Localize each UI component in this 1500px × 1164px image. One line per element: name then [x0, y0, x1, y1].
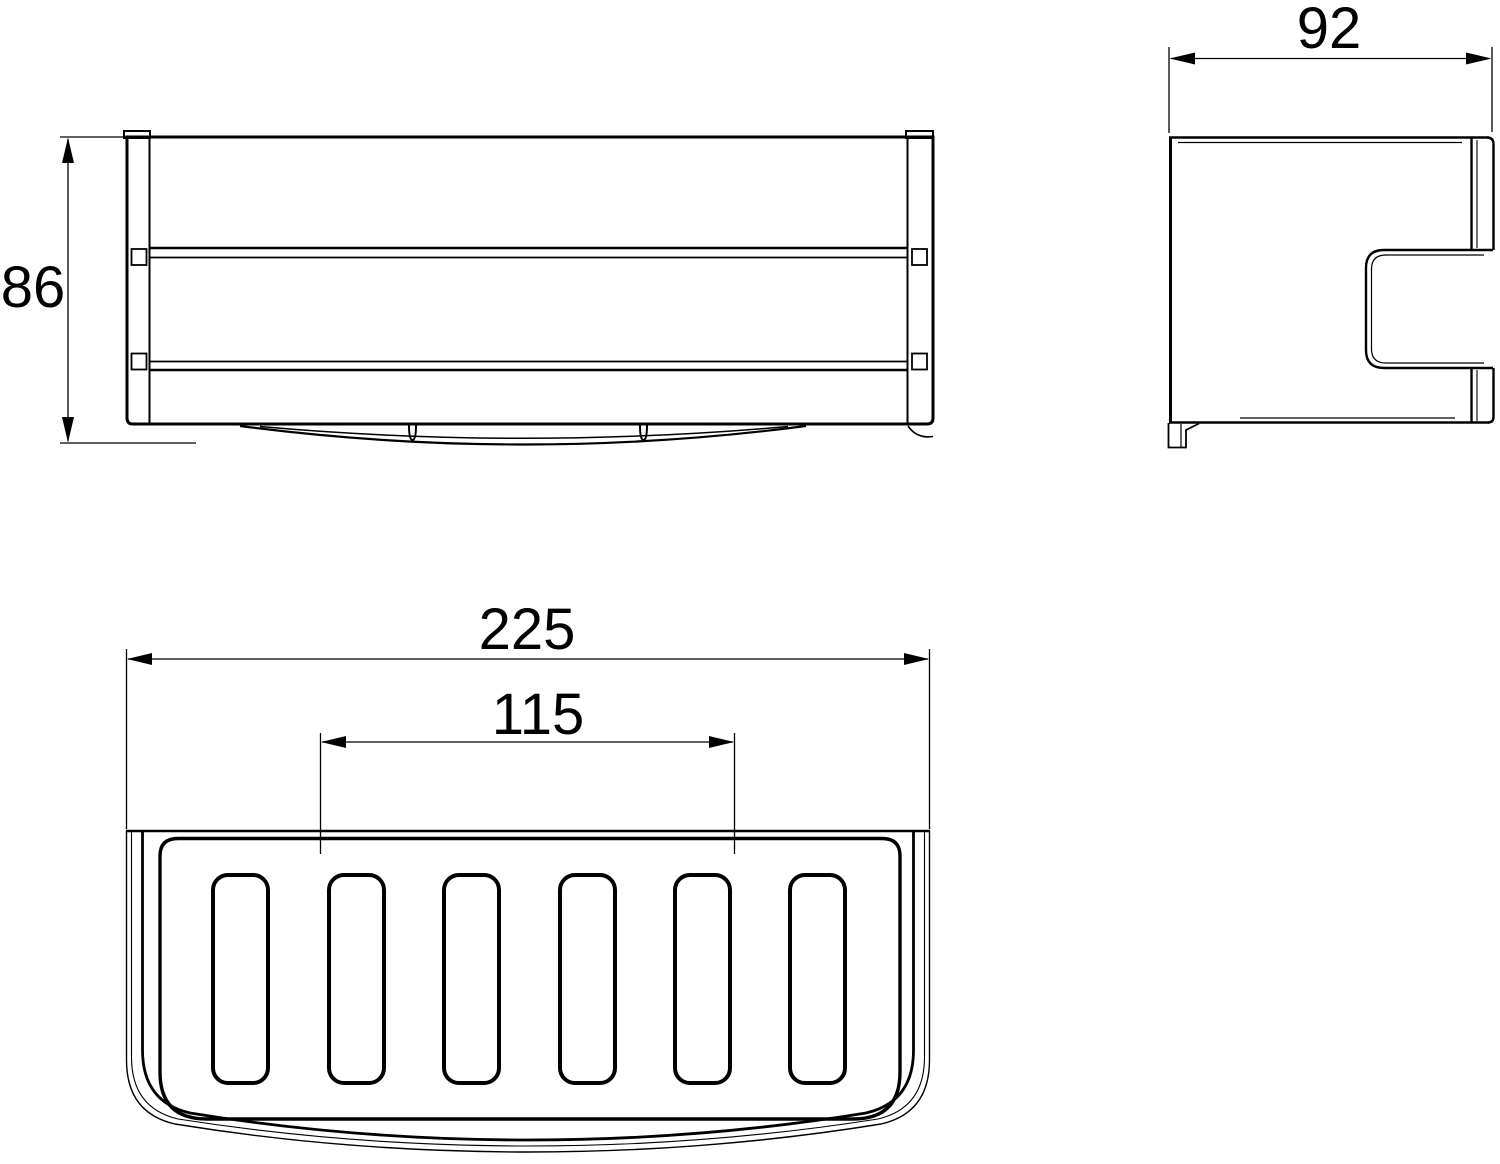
plan-slot-4 — [560, 875, 615, 1083]
side-notch-inner — [1372, 255, 1485, 363]
dimension-inner-spacing: 115 — [321, 682, 735, 854]
dim-height-label: 86 — [1, 255, 66, 320]
dim-height-arrow-down — [62, 417, 74, 443]
dim-inner-arrow-right — [709, 736, 734, 748]
plan-slot-5 — [675, 875, 730, 1083]
side-bottom-strip-outer-edge — [1488, 368, 1494, 423]
plan-slot-2 — [329, 875, 384, 1083]
plan-slot-3 — [444, 875, 499, 1083]
front-drain-pin-right — [640, 426, 647, 441]
plan-outer-rim — [127, 831, 930, 1152]
plan-slot-1 — [213, 875, 268, 1083]
front-left-post-step-upper — [132, 249, 147, 265]
plan-outer-rim-hairline — [132, 831, 925, 1146]
dim-depth-arrow-left — [1170, 53, 1196, 65]
technical-drawing-canvas: 86 92 — [0, 0, 1500, 1164]
front-view — [124, 131, 933, 445]
front-drain-pin-left — [409, 426, 416, 441]
side-mount-foot — [1169, 423, 1200, 448]
side-view — [1169, 137, 1494, 448]
front-right-post-step-upper — [912, 249, 927, 265]
dim-width-arrow-left — [127, 653, 152, 665]
dim-inner-arrow-left — [321, 736, 346, 748]
dim-depth-label: 92 — [1297, 0, 1362, 61]
dim-inner-label: 115 — [492, 682, 584, 747]
dim-width-label: 225 — [479, 597, 576, 662]
side-top-strip-outer-edge — [1487, 138, 1494, 251]
front-right-post-step-lower — [912, 354, 927, 370]
plan-slot-6 — [790, 875, 845, 1083]
plan-view — [126, 831, 930, 1152]
side-notch-outer — [1366, 250, 1493, 368]
dim-height-arrow-up — [62, 138, 74, 164]
drawing-sheet: 86 92 — [0, 0, 1500, 1164]
front-left-post-step-lower — [132, 354, 147, 370]
dimension-height: 86 — [1, 137, 196, 443]
dimension-depth: 92 — [1169, 0, 1492, 133]
front-outline — [127, 137, 933, 424]
front-bottom-right-rim — [908, 426, 933, 437]
front-bottom-outer-curve — [240, 426, 806, 445]
dim-depth-arrow-right — [1466, 53, 1492, 65]
dim-width-arrow-right — [904, 653, 929, 665]
